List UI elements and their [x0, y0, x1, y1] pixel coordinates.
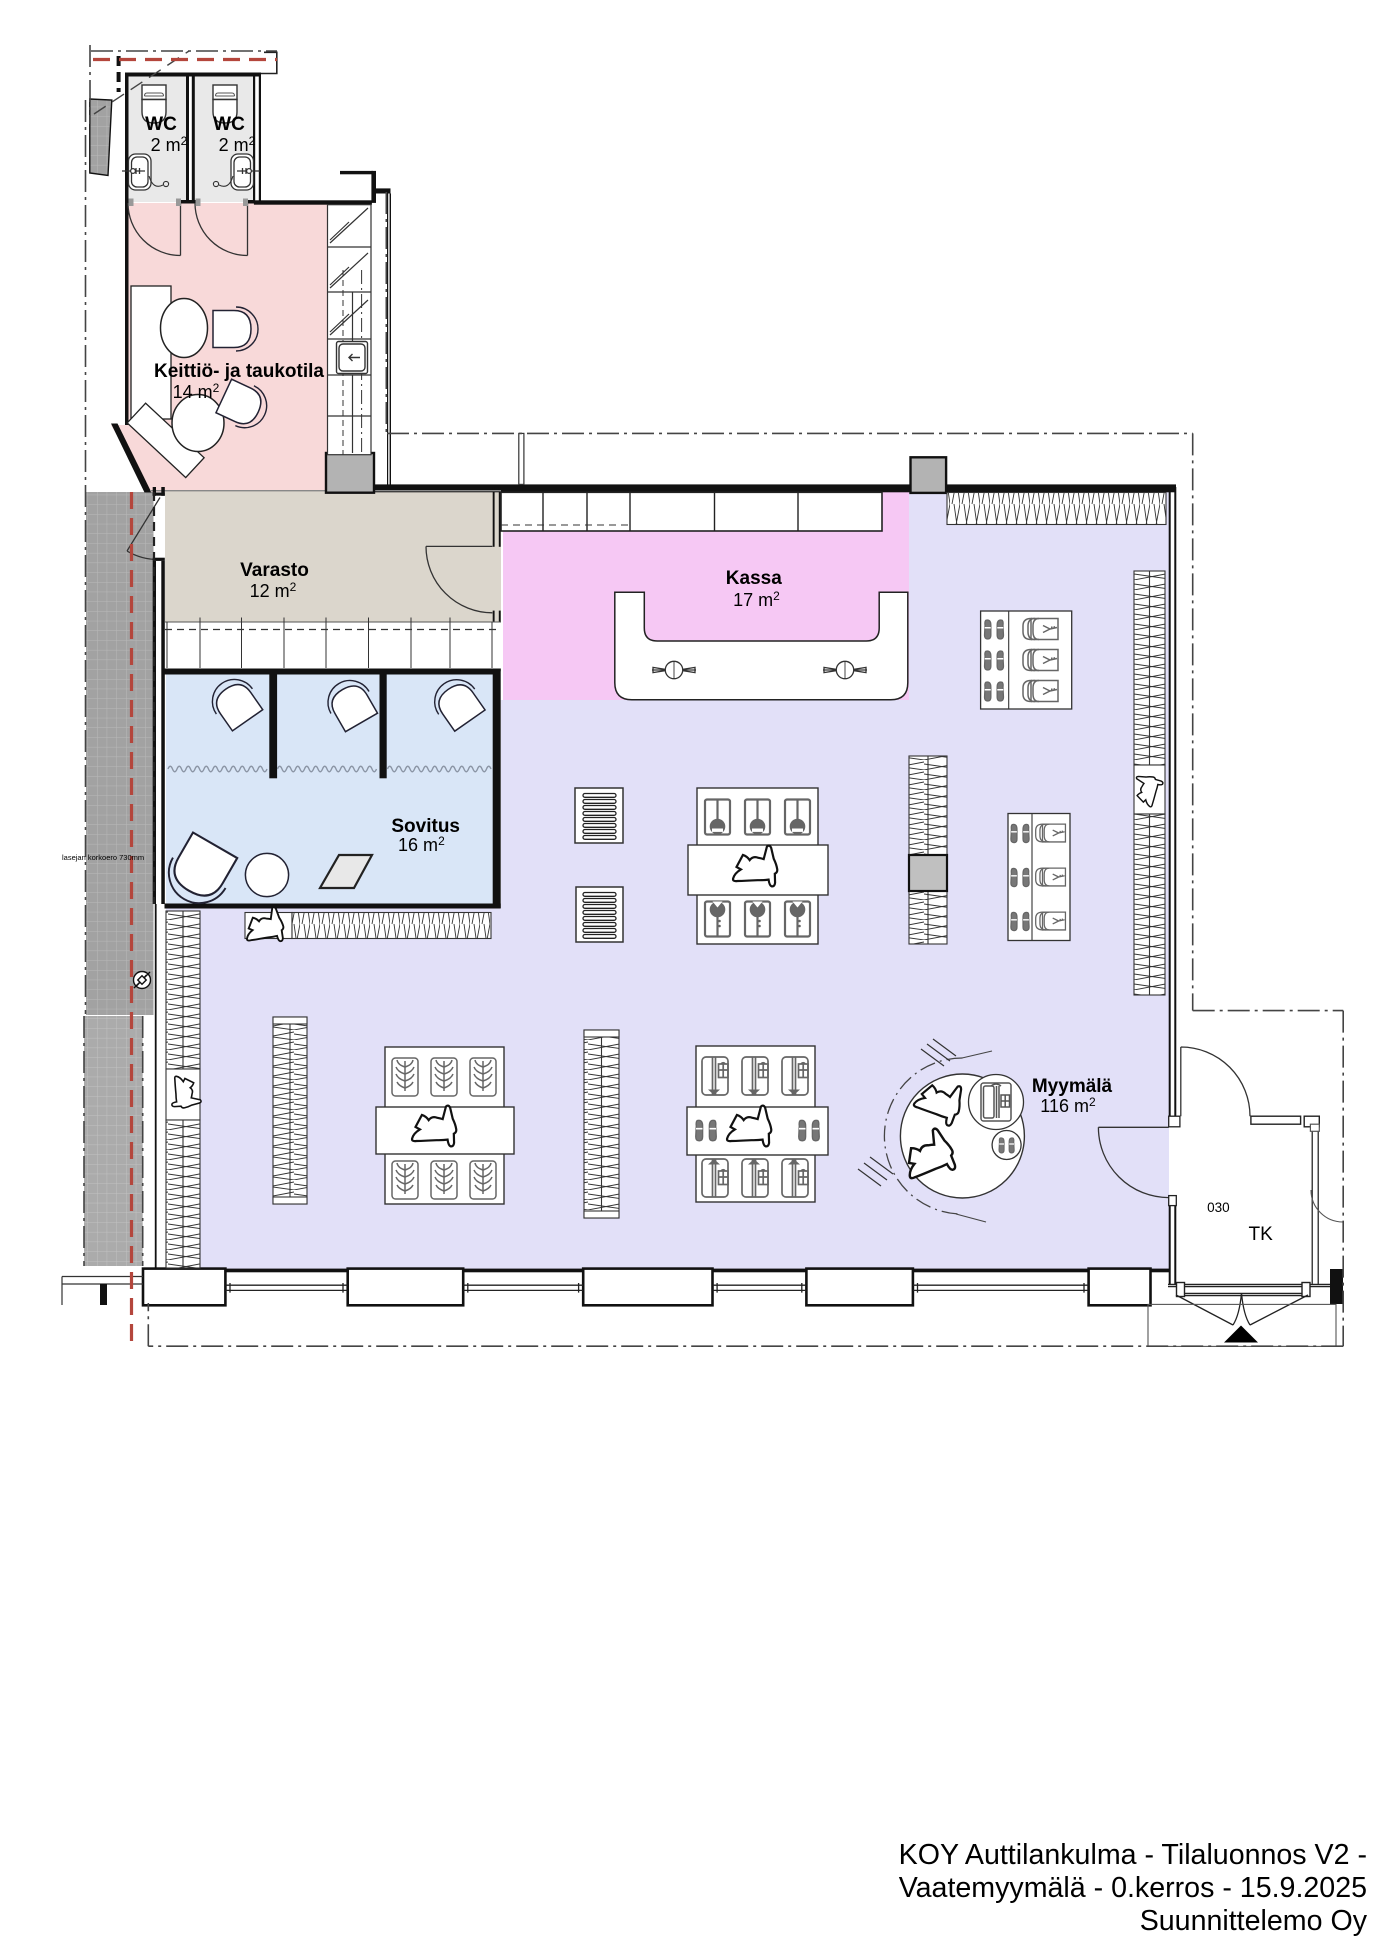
svg-text:Sovitus: Sovitus [391, 816, 460, 837]
svg-text:lasejan korkoero 730mm: lasejan korkoero 730mm [62, 853, 144, 862]
svg-text:WC: WC [213, 114, 245, 135]
svg-text:116 m2: 116 m2 [1040, 1095, 1096, 1116]
svg-text:Myymälä: Myymälä [1032, 1076, 1113, 1097]
svg-text:TK: TK [1249, 1224, 1274, 1245]
svg-text:030: 030 [1207, 1200, 1230, 1215]
svg-text:Keittiö- ja taukotila: Keittiö- ja taukotila [154, 361, 324, 382]
svg-text:KOY Auttilankulma - Tilaluonno: KOY Auttilankulma - Tilaluonnos V2 - [899, 1839, 1367, 1871]
svg-text:Varasto: Varasto [240, 560, 309, 581]
svg-text:WC: WC [145, 114, 177, 135]
svg-text:16 m2: 16 m2 [398, 834, 445, 855]
svg-text:Kassa: Kassa [726, 568, 782, 589]
svg-text:14 m2: 14 m2 [173, 381, 220, 402]
svg-text:12 m2: 12 m2 [250, 580, 297, 601]
svg-text:Suunnittelemo Oy: Suunnittelemo Oy [1140, 1905, 1368, 1937]
svg-text:17 m2: 17 m2 [733, 589, 780, 610]
svg-text:Vaatemyymälä - 0.kerros - 15.9: Vaatemyymälä - 0.kerros - 15.9.2025 [899, 1872, 1367, 1904]
